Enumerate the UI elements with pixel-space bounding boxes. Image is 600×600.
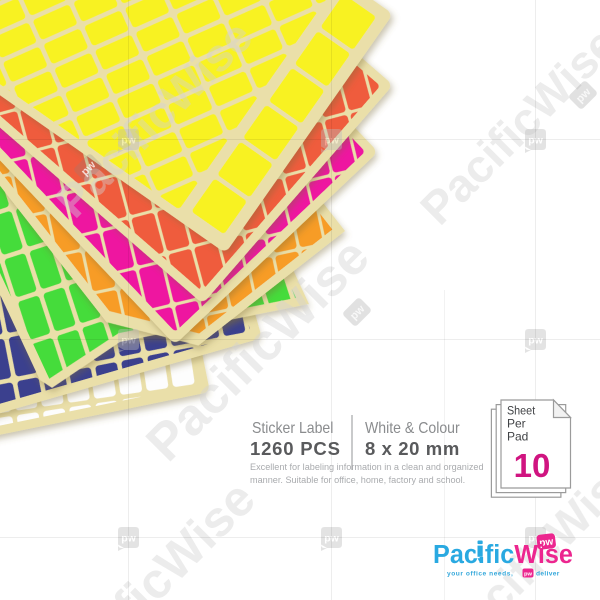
svg-text:PacificWise: PacificWise <box>433 541 573 569</box>
svg-text:pw: pw <box>524 572 533 578</box>
svg-text:Per: Per <box>507 417 526 431</box>
svg-text:10: 10 <box>514 447 551 484</box>
svg-text:deliver: deliver <box>536 571 560 578</box>
svg-text:Pad: Pad <box>507 430 528 444</box>
svg-text:your office needs,: your office needs, <box>447 571 513 578</box>
svg-text:PacificWise: PacificWise <box>30 470 266 600</box>
svg-text:PacificWise: PacificWise <box>410 17 600 234</box>
